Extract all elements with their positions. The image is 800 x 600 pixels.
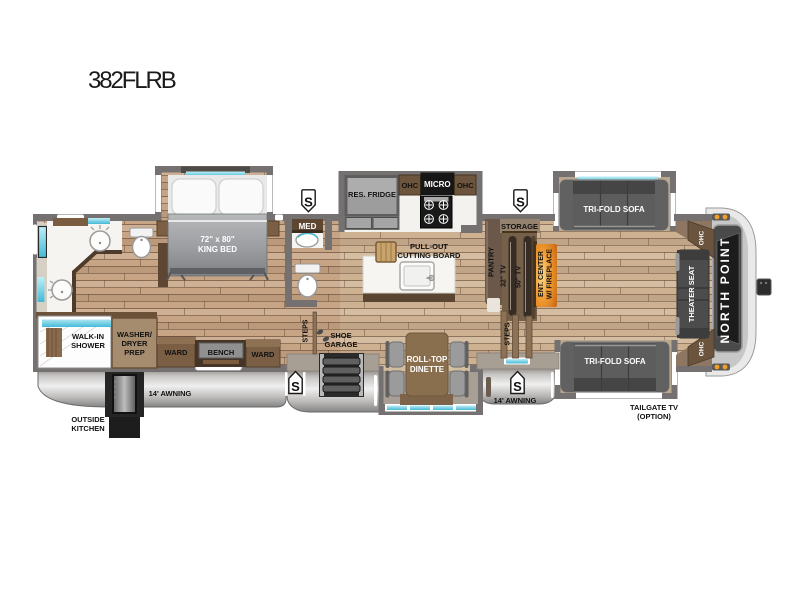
svg-text:MED: MED — [299, 222, 317, 231]
svg-text:72" x 80": 72" x 80" — [200, 235, 234, 244]
svg-text:KITCHEN: KITCHEN — [71, 424, 104, 433]
svg-text:S: S — [516, 195, 525, 210]
svg-text:S: S — [291, 379, 300, 394]
svg-text:PULL-OUT: PULL-OUT — [410, 242, 448, 251]
svg-text:ENT. CENTER: ENT. CENTER — [538, 251, 545, 297]
svg-text:KING BED: KING BED — [198, 245, 237, 254]
svg-text:CUTTING BOARD: CUTTING BOARD — [398, 251, 461, 260]
svg-text:RES. FRIDGE: RES. FRIDGE — [348, 190, 396, 199]
svg-text:(OPTION): (OPTION) — [637, 412, 671, 421]
svg-text:50" TV: 50" TV — [516, 266, 523, 288]
svg-text:BENCH: BENCH — [208, 348, 235, 357]
svg-text:GARAGE: GARAGE — [325, 340, 358, 349]
svg-text:WASHER/: WASHER/ — [117, 330, 153, 339]
svg-text:NORTH POINT: NORTH POINT — [718, 237, 732, 344]
svg-text:WARD: WARD — [252, 350, 275, 359]
svg-text:32" TV: 32" TV — [501, 265, 508, 287]
svg-text:14' AWNING: 14' AWNING — [149, 389, 192, 398]
svg-text:ROLL-TOP: ROLL-TOP — [407, 355, 448, 364]
svg-text:SHOWER: SHOWER — [71, 341, 105, 350]
svg-text:THEATER SEAT: THEATER SEAT — [687, 265, 696, 322]
svg-text:SHOE: SHOE — [330, 331, 351, 340]
svg-text:382FLRB: 382FLRB — [88, 67, 176, 94]
svg-text:TRI-FOLD SOFA: TRI-FOLD SOFA — [584, 357, 646, 366]
svg-text:S: S — [304, 195, 313, 210]
svg-text:DRYER: DRYER — [122, 339, 149, 348]
svg-text:TRI-FOLD SOFA: TRI-FOLD SOFA — [583, 205, 645, 214]
svg-text:OHC: OHC — [699, 230, 706, 245]
svg-text:OUTSIDE: OUTSIDE — [71, 415, 104, 424]
svg-text:OHC: OHC — [699, 341, 706, 356]
svg-text:14' AWNING: 14' AWNING — [494, 396, 537, 405]
svg-text:W/ FIREPLACE: W/ FIREPLACE — [547, 249, 554, 299]
svg-text:DINETTE: DINETTE — [410, 365, 445, 374]
svg-text:OHC: OHC — [457, 181, 474, 190]
svg-text:PANTRY: PANTRY — [487, 247, 496, 277]
svg-text:PREP: PREP — [124, 348, 144, 357]
svg-text:STEPS: STEPS — [303, 319, 310, 342]
svg-text:WALK-IN: WALK-IN — [72, 332, 104, 341]
svg-text:S: S — [513, 379, 522, 394]
svg-text:STEPS: STEPS — [505, 322, 512, 345]
svg-text:OHC: OHC — [401, 181, 418, 190]
svg-text:TAILGATE TV: TAILGATE TV — [630, 403, 678, 412]
svg-text:MICRO: MICRO — [424, 180, 451, 189]
svg-text:WARD: WARD — [165, 348, 188, 357]
svg-text:STORAGE: STORAGE — [501, 222, 538, 231]
